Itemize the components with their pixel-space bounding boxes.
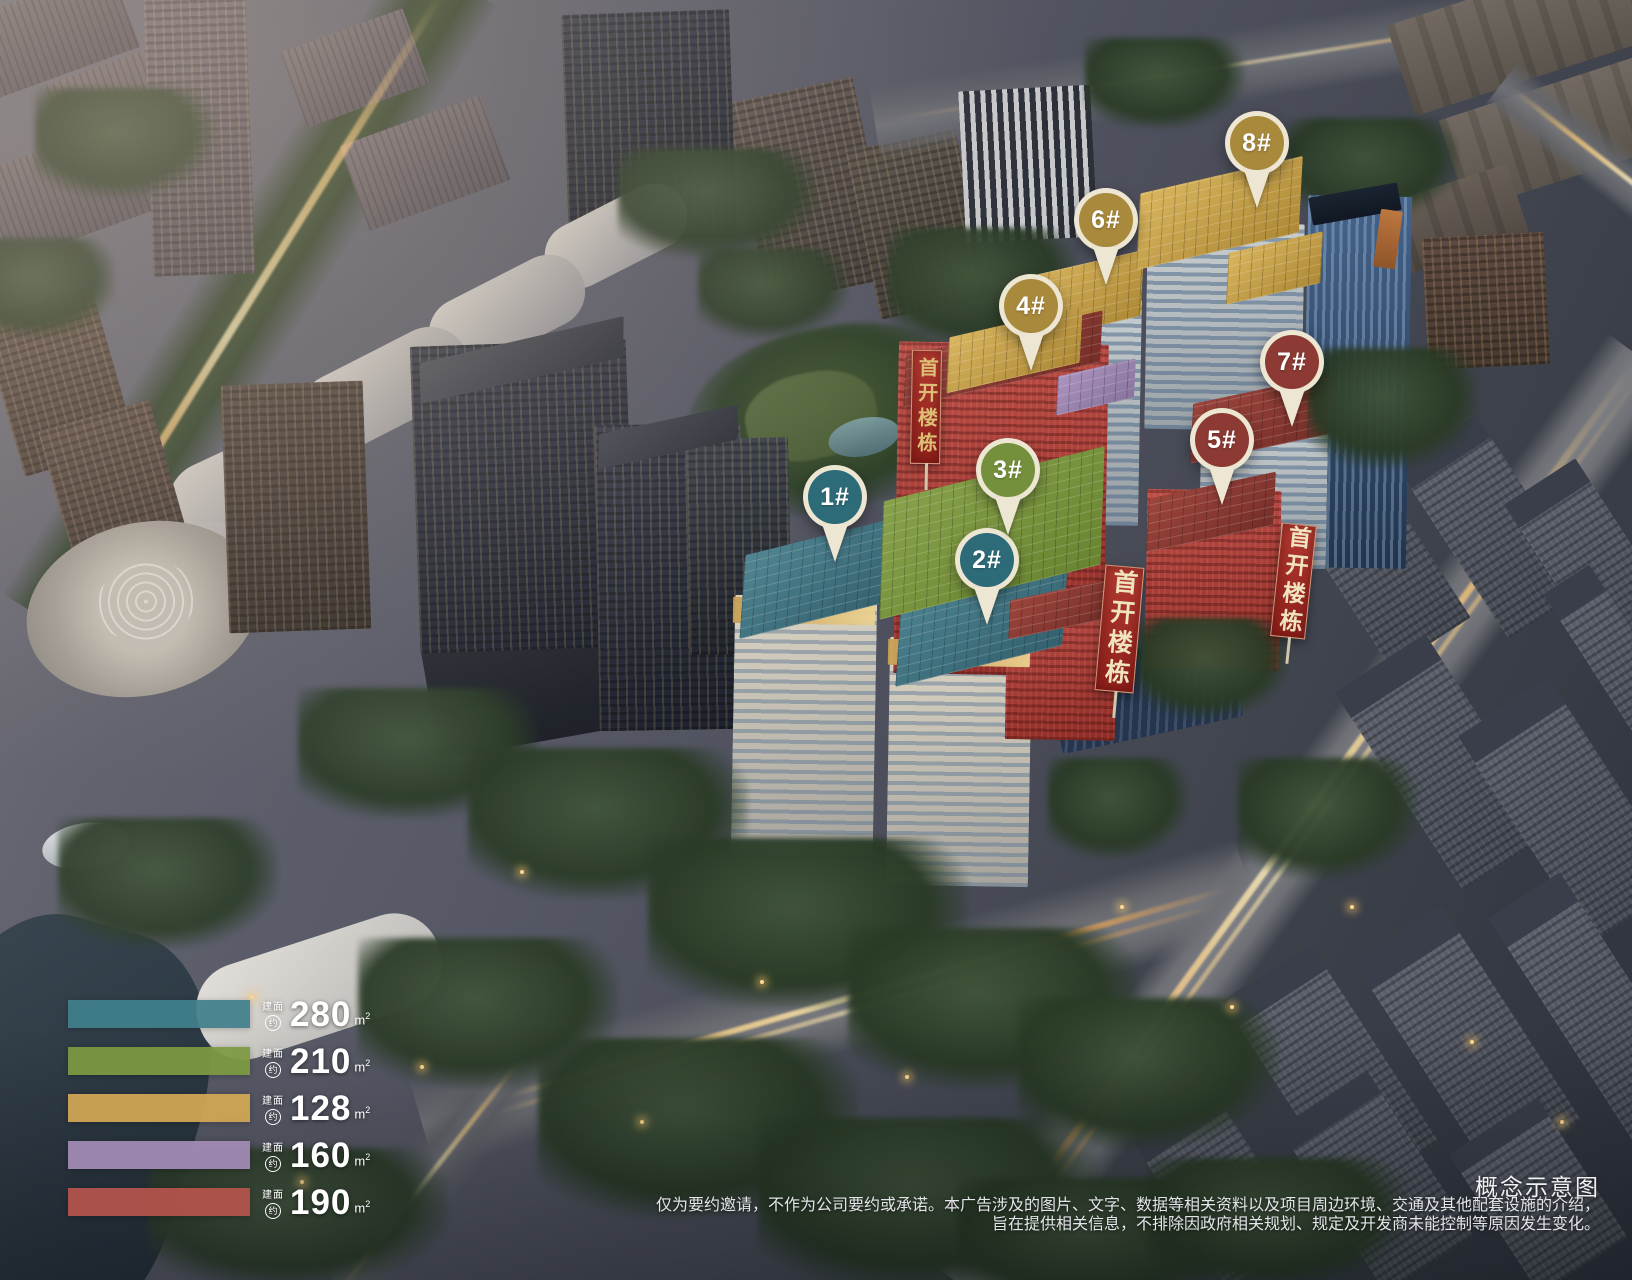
marker-pin-tail xyxy=(1279,389,1305,427)
legend-unit-exp: 2 xyxy=(365,1105,370,1115)
legend-area-prefix-circle: 约 xyxy=(265,1109,281,1125)
marker-pin-ring: 7# xyxy=(1260,330,1324,394)
marker-label: 6# xyxy=(1091,206,1121,235)
legend-area-prefix: 建面约 xyxy=(262,1139,284,1172)
marker-pin-ring: 8# xyxy=(1225,111,1289,175)
legend-unit-m: m xyxy=(354,1200,365,1215)
legend-color-bar xyxy=(68,1094,250,1122)
marker-pin-ring: 6# xyxy=(1074,188,1138,252)
legend-area-prefix-circle: 约 xyxy=(265,1015,281,1031)
legend-area-prefix-top: 建面 xyxy=(262,1092,284,1107)
banner-text: 首开楼栋 xyxy=(911,357,942,457)
marker-pin-ring: 4# xyxy=(999,274,1063,338)
marker-label: 8# xyxy=(1242,129,1272,158)
marker-pin-circle: 4# xyxy=(1004,279,1058,333)
building-marker-1: 1# xyxy=(803,465,867,562)
legend-color-bar xyxy=(68,1000,250,1028)
legend-unit-m: m xyxy=(354,1012,365,1027)
marker-pin-tail xyxy=(1244,170,1270,208)
marker-label: 5# xyxy=(1207,426,1237,455)
marker-pin-tail xyxy=(974,587,1000,625)
building-marker-2: 2# xyxy=(955,528,1019,625)
legend-unit-exp: 2 xyxy=(365,1011,370,1021)
marker-pin-circle: 7# xyxy=(1265,335,1319,389)
legend-color-bar xyxy=(68,1188,250,1216)
legend-color-bar xyxy=(68,1141,250,1169)
marker-pin-ring: 2# xyxy=(955,528,1019,592)
marker-pin-tail xyxy=(1018,333,1044,371)
legend-area-unit: m2 xyxy=(354,1011,370,1027)
legend-label: 建面约160m2 xyxy=(262,1138,370,1173)
marker-pin-tail xyxy=(822,524,848,562)
legend-area-prefix: 建面约 xyxy=(262,1045,284,1078)
marker-pin-circle: 3# xyxy=(981,443,1035,497)
legend-label: 建面约128m2 xyxy=(262,1091,370,1126)
legend-unit-exp: 2 xyxy=(365,1058,370,1068)
marker-pin-circle: 1# xyxy=(808,470,862,524)
legend-area-unit: m2 xyxy=(354,1058,370,1074)
legend-area-prefix: 建面约 xyxy=(262,1092,284,1125)
legend-item: 建面约128m2 xyxy=(68,1094,370,1122)
legend-area-prefix-circle: 约 xyxy=(265,1156,281,1172)
legend-area-prefix-top: 建面 xyxy=(262,998,284,1013)
building-marker-6: 6# xyxy=(1074,188,1138,285)
legend-label: 建面约280m2 xyxy=(262,997,370,1032)
legend-area-value: 160 xyxy=(290,1138,351,1173)
legend-area-prefix-top: 建面 xyxy=(262,1139,284,1154)
marker-pin-circle: 8# xyxy=(1230,116,1284,170)
legend-item: 建面约280m2 xyxy=(68,1000,370,1028)
marker-pin-tail xyxy=(1209,467,1235,505)
legend-area-value: 190 xyxy=(290,1185,351,1220)
legend-area-unit: m2 xyxy=(354,1105,370,1121)
marker-pin-ring: 5# xyxy=(1190,408,1254,472)
legend-area-prefix-circle: 约 xyxy=(265,1062,281,1078)
legend-label: 建面约190m2 xyxy=(262,1185,370,1220)
marker-pin-tail xyxy=(1093,247,1119,285)
aerial-render: 首开楼栋首开楼栋首开楼栋 1#2#3#4#5#6#7#8# 建面约280m2建面… xyxy=(0,0,1632,1280)
legend-area-prefix-top: 建面 xyxy=(262,1045,284,1060)
legend-area-unit: m2 xyxy=(354,1152,370,1168)
legend-item: 建面约160m2 xyxy=(68,1141,370,1169)
disclaimer: 仅为要约邀请，不作为公司要约或承诺。本广告涉及的图片、文字、数据等相关资料以及项… xyxy=(560,1197,1600,1234)
legend-area-value: 210 xyxy=(290,1044,351,1079)
legend-unit-exp: 2 xyxy=(365,1152,370,1162)
marker-label: 7# xyxy=(1277,348,1307,377)
legend-color-bar xyxy=(68,1047,250,1075)
legend-unit-m: m xyxy=(354,1106,365,1121)
marker-pin-circle: 2# xyxy=(960,533,1014,587)
legend-item: 建面约210m2 xyxy=(68,1047,370,1075)
building-marker-5: 5# xyxy=(1190,408,1254,505)
marker-pin-circle: 5# xyxy=(1195,413,1249,467)
area-legend: 建面约280m2建面约210m2建面约128m2建面约160m2建面约190m2 xyxy=(68,1000,370,1216)
building-marker-7: 7# xyxy=(1260,330,1324,427)
legend-unit-m: m xyxy=(354,1153,365,1168)
legend-unit-exp: 2 xyxy=(365,1199,370,1209)
legend-area-prefix-top: 建面 xyxy=(262,1186,284,1201)
first-launch-banner: 首开楼栋 xyxy=(910,350,942,465)
legend-item: 建面约190m2 xyxy=(68,1188,370,1216)
building-marker-4: 4# xyxy=(999,274,1063,371)
legend-area-value: 128 xyxy=(290,1091,351,1126)
legend-area-prefix: 建面约 xyxy=(262,1186,284,1219)
marker-label: 3# xyxy=(993,456,1023,485)
legend-area-value: 280 xyxy=(290,997,351,1032)
building-marker-8: 8# xyxy=(1225,111,1289,208)
disclaimer-line2: 旨在提供相关信息，不排除因政府相关规划、规定及开发商未能控制等原因发生变化。 xyxy=(560,1216,1600,1235)
building-marker-3: 3# xyxy=(976,438,1040,535)
marker-pin-circle: 6# xyxy=(1079,193,1133,247)
legend-area-unit: m2 xyxy=(354,1199,370,1215)
banner-pole xyxy=(925,463,928,490)
legend-area-prefix: 建面约 xyxy=(262,998,284,1031)
marker-pin-ring: 1# xyxy=(803,465,867,529)
marker-pin-tail xyxy=(995,497,1021,535)
legend-unit-m: m xyxy=(354,1059,365,1074)
legend-label: 建面约210m2 xyxy=(262,1044,370,1079)
marker-pin-ring: 3# xyxy=(976,438,1040,502)
legend-area-prefix-circle: 约 xyxy=(265,1203,281,1219)
marker-label: 2# xyxy=(972,546,1002,575)
marker-label: 1# xyxy=(820,483,850,512)
marker-label: 4# xyxy=(1016,292,1046,321)
disclaimer-line1: 仅为要约邀请，不作为公司要约或承诺。本广告涉及的图片、文字、数据等相关资料以及项… xyxy=(560,1197,1600,1216)
